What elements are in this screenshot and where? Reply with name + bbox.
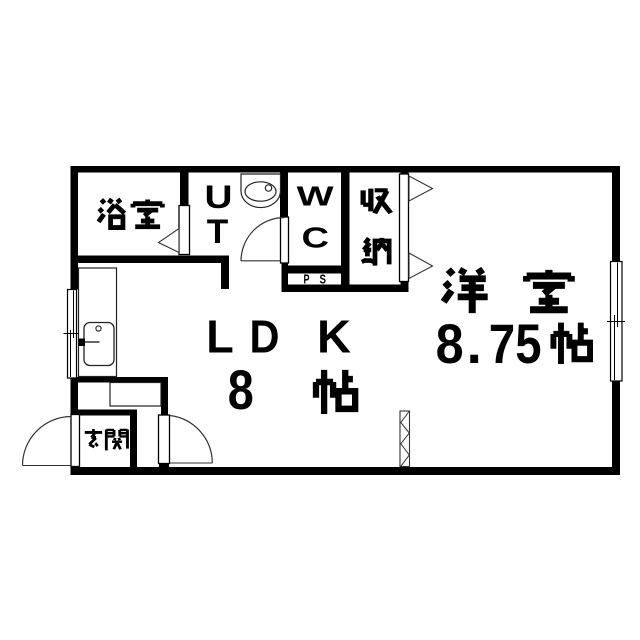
svg-text:L: L xyxy=(206,311,234,363)
svg-text:8: 8 xyxy=(228,359,254,421)
svg-text:S: S xyxy=(320,272,327,287)
svg-text:D: D xyxy=(250,311,280,363)
svg-text:W: W xyxy=(297,181,334,212)
svg-text:T: T xyxy=(207,213,229,251)
svg-text:7: 7 xyxy=(489,313,515,375)
svg-text:K: K xyxy=(317,311,351,363)
svg-text:.: . xyxy=(467,313,482,375)
svg-text:8: 8 xyxy=(436,313,464,375)
svg-text:C: C xyxy=(302,223,330,255)
svg-text:P: P xyxy=(304,272,310,287)
svg-text:5: 5 xyxy=(515,313,541,375)
svg-text:U: U xyxy=(205,179,233,215)
